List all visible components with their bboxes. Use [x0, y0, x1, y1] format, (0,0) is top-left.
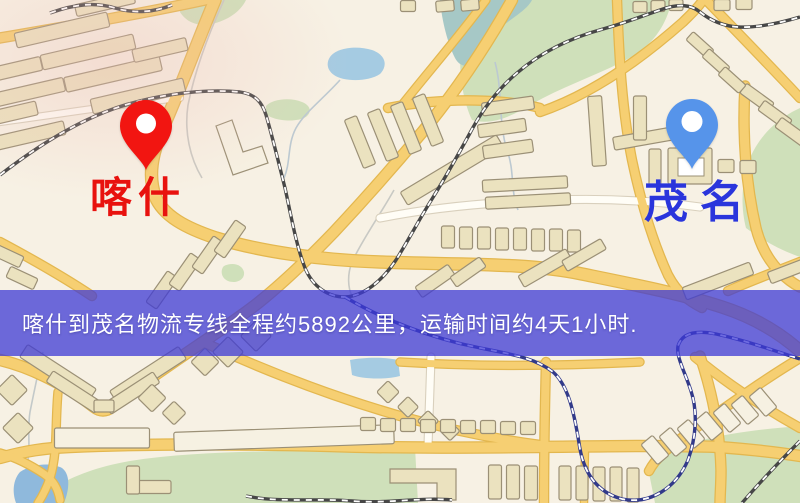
route-info-banner: 喀什到茂名物流专线全程约5892公里，运输时间约4天1小时. [0, 290, 800, 356]
route-info-text: 喀什到茂名物流专线全程约5892公里，运输时间约4天1小时. [0, 307, 638, 339]
origin-pin-icon[interactable] [116, 96, 176, 176]
map-canvas[interactable]: 喀什 茂名 喀什到茂名物流专线全程约5892公里，运输时间约4天1小时. [0, 0, 800, 503]
street-map-background [0, 0, 800, 503]
pin-hole [682, 111, 703, 132]
destination-city-label: 茂名 [644, 181, 756, 225]
destination-pin-icon[interactable] [662, 95, 722, 175]
pin-hole [136, 114, 156, 134]
origin-city-label: 喀什 [90, 177, 186, 219]
